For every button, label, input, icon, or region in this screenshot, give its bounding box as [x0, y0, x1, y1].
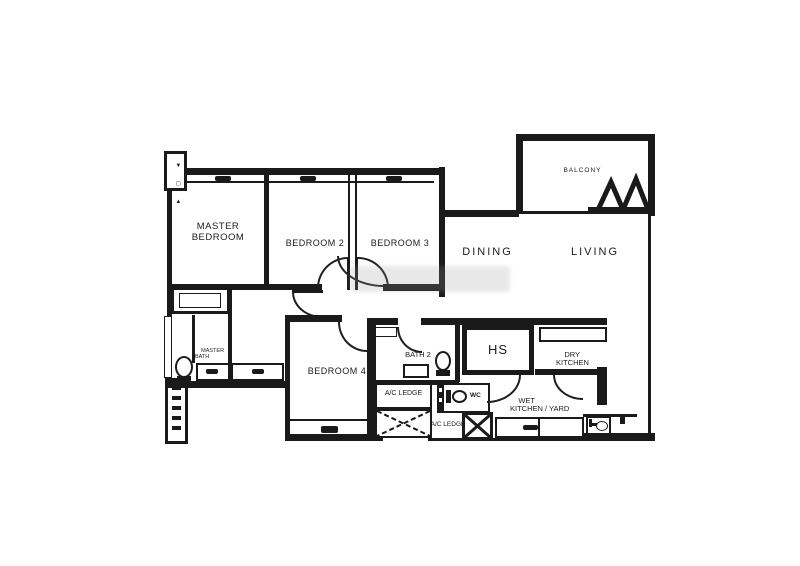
wc-door-notch	[439, 388, 442, 392]
room-label-bath2: BATH 2	[396, 350, 440, 360]
hs-label: HS	[488, 343, 508, 358]
cabinet-handle-icon	[252, 369, 264, 374]
wall	[648, 216, 651, 437]
room-label-ac-ledge-bottom: A/C LEDGE	[428, 420, 468, 430]
room-label-wet-kitchen: WETKITCHEN / YARD	[510, 388, 590, 423]
wall	[285, 434, 383, 441]
wall	[516, 134, 655, 141]
wall	[620, 414, 625, 424]
wall	[373, 318, 398, 325]
shelf	[375, 327, 397, 337]
wall	[264, 175, 269, 285]
toilet-icon	[175, 356, 193, 378]
room-label-master-bath: MASTERBATH	[195, 341, 231, 367]
toilet-icon	[452, 390, 467, 403]
wall	[428, 438, 588, 441]
balcony-window-zigzag-icon	[594, 174, 652, 214]
floor-plan: ▼ ◻ ▲	[0, 0, 800, 566]
cabinet-handle-icon	[206, 369, 218, 374]
wall	[172, 181, 434, 183]
sink-basin-icon	[596, 421, 608, 431]
toilet-base	[446, 390, 451, 403]
window-mark-icon	[215, 176, 231, 181]
shaft-symbols-icon: ▼ ◻ ▲	[166, 153, 184, 216]
room-label-balcony: BALCONY	[545, 166, 620, 176]
hatch-x-icon	[377, 411, 430, 436]
cabinet-handle-icon	[523, 425, 538, 430]
door-leaf	[292, 290, 323, 293]
room-label-ac-ledge-left: A/C LEDGE	[377, 388, 430, 400]
wall	[421, 318, 607, 325]
room-label-wc: WC	[470, 392, 481, 399]
wall	[584, 433, 655, 441]
toilet-base	[436, 370, 450, 376]
kitchen-counter	[539, 327, 607, 342]
room-label-master-bedroom: MASTERBEDROOM	[172, 220, 264, 246]
household-shelter: HS	[462, 325, 534, 375]
x-icon	[465, 415, 490, 437]
room-label-dining: DINING	[445, 244, 530, 260]
room-label-bedroom4: BEDROOM 4	[294, 365, 380, 377]
wall	[167, 381, 288, 388]
room-label-bedroom2: BEDROOM 2	[270, 237, 360, 249]
wall	[171, 311, 229, 314]
wall	[455, 325, 460, 382]
wall	[348, 175, 350, 267]
wall	[287, 315, 342, 322]
window-mark-icon	[321, 426, 338, 433]
wall	[439, 210, 519, 217]
wall	[355, 175, 357, 267]
bath2-vanity	[403, 364, 429, 378]
wall	[516, 134, 523, 214]
wall	[290, 419, 378, 421]
bath-window	[164, 316, 172, 378]
watermark	[350, 266, 510, 292]
door-arc	[338, 322, 367, 352]
room-label-living: LIVING	[550, 244, 640, 260]
wall	[167, 168, 443, 175]
window-mark-icon	[386, 176, 402, 181]
room-label-bedroom3: BEDROOM 3	[355, 237, 445, 249]
ledge-hatch-icon	[172, 386, 181, 436]
room-label-dry-kitchen: DRYKITCHEN	[556, 342, 608, 377]
wc-door-notch	[439, 398, 442, 402]
vanity-basin	[179, 293, 221, 308]
window-mark-icon	[300, 176, 316, 181]
